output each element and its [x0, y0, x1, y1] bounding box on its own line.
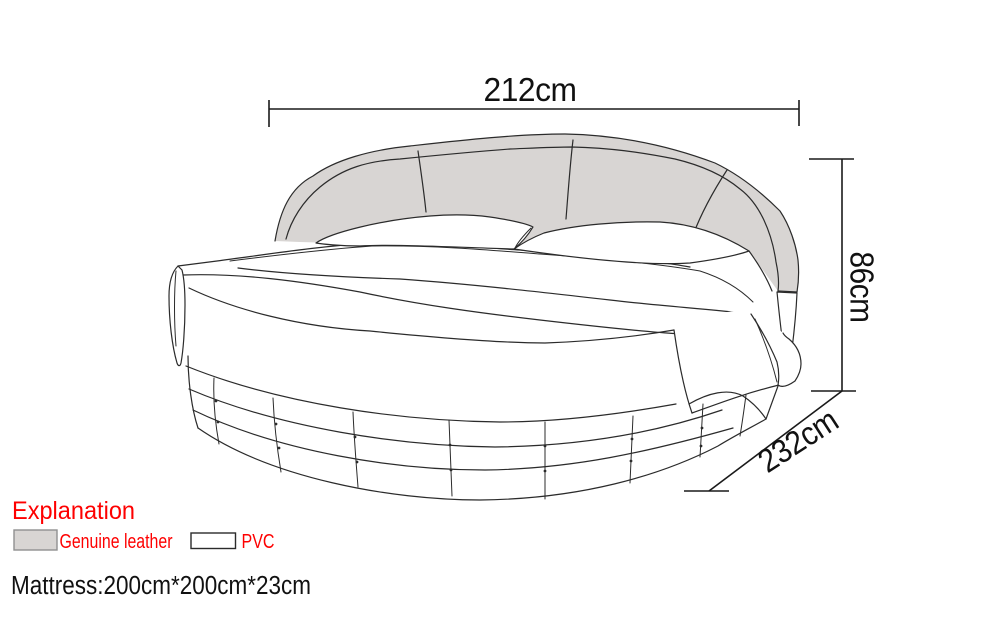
svg-text:86cm: 86cm [843, 252, 880, 323]
svg-text:Explanation: Explanation [12, 497, 135, 525]
svg-text:212cm: 212cm [484, 71, 577, 108]
svg-text:PVC: PVC [242, 531, 275, 553]
svg-text:Mattress:200cm*200cm*23cm: Mattress:200cm*200cm*23cm [11, 572, 311, 600]
svg-text:Genuine leather: Genuine leather [60, 531, 173, 553]
